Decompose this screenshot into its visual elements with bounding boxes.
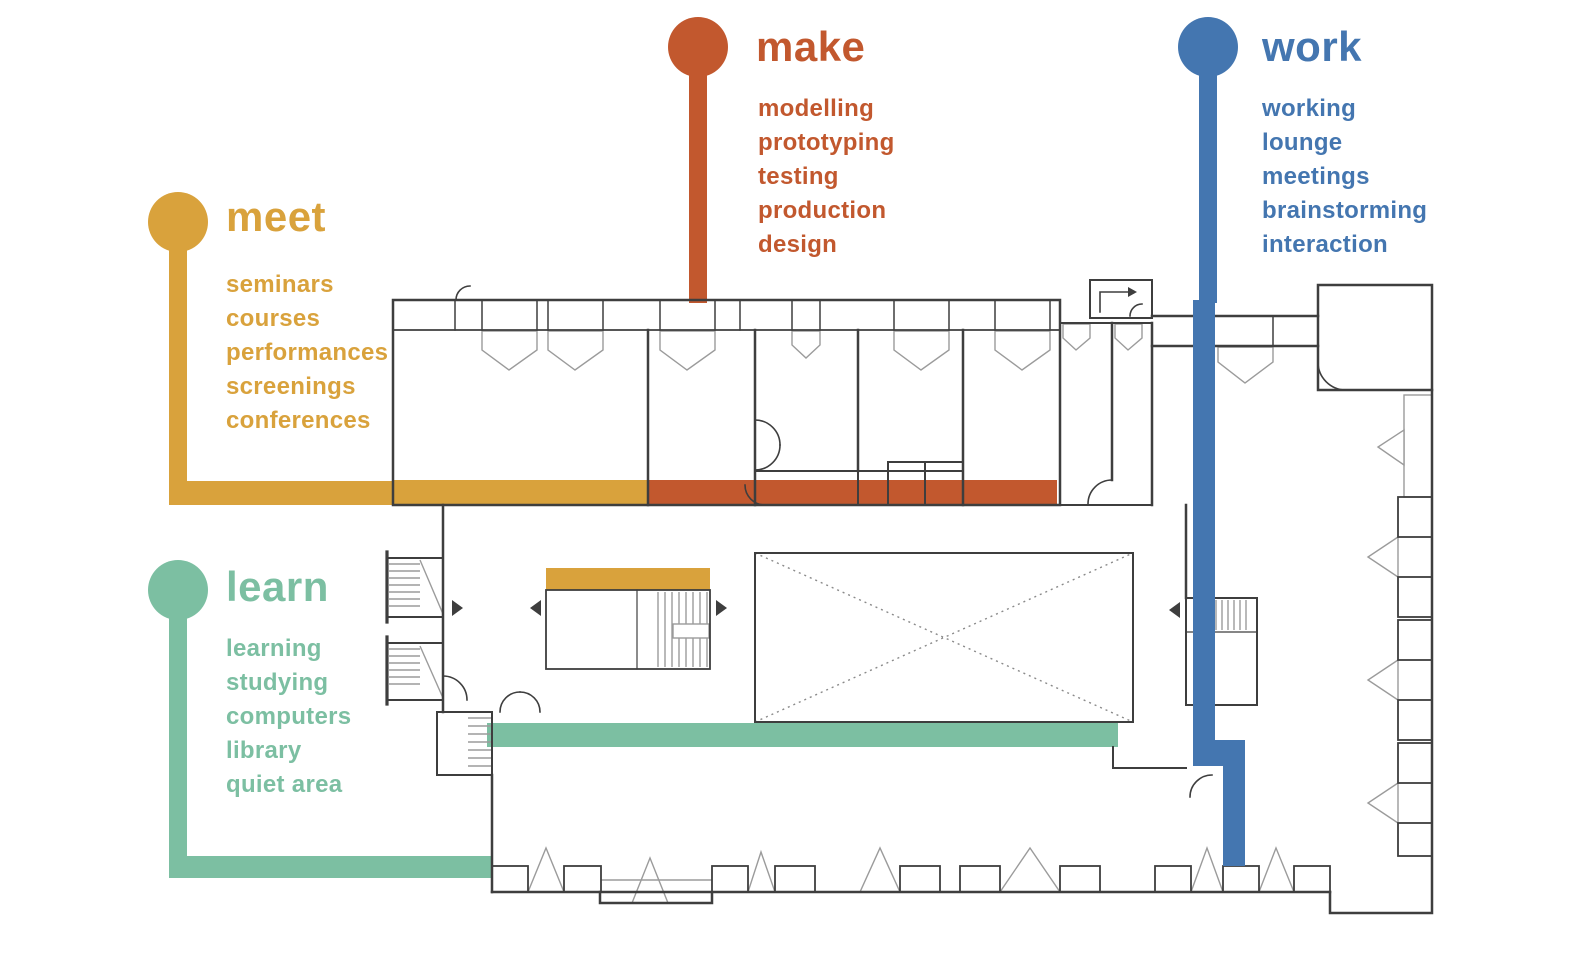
legend-make-list: modelling prototyping testing production…: [758, 92, 895, 262]
legend-meet-title: meet: [226, 196, 326, 238]
void-area: [755, 553, 1133, 722]
vestibule: [1060, 280, 1152, 505]
plan-walls: [387, 280, 1432, 913]
legend-learn-list: learning studying computers library quie…: [226, 632, 351, 802]
work-connector: [1178, 17, 1238, 303]
direction-arrows: [452, 600, 1180, 618]
poster: meet seminars courses performances scree…: [0, 0, 1582, 968]
legend-item: computers: [226, 700, 351, 734]
legend-item: brainstorming: [1262, 194, 1427, 228]
make-connector: [668, 17, 728, 303]
north-wing: [393, 286, 1060, 505]
legend-item: working: [1262, 92, 1427, 126]
legend-item: lounge: [1262, 126, 1427, 160]
legend-item: design: [758, 228, 895, 262]
make-zone-band: [648, 480, 1057, 505]
furniture-accent-band: [546, 568, 710, 590]
legend-item: meetings: [1262, 160, 1427, 194]
legend-work-list: working lounge meetings brainstorming in…: [1262, 92, 1427, 262]
legend-learn-title: learn: [226, 566, 329, 608]
legend-item: interaction: [1262, 228, 1427, 262]
legend-item: courses: [226, 302, 388, 336]
legend-item: library: [226, 734, 351, 768]
learn-zone-band: [487, 723, 1118, 747]
legend-item: quiet area: [226, 768, 351, 802]
corridor: [1152, 316, 1318, 346]
legend-item: modelling: [758, 92, 895, 126]
legend-make-title: make: [756, 26, 865, 68]
legend-item: prototyping: [758, 126, 895, 160]
legend-item: production: [758, 194, 895, 228]
legend-item: learning: [226, 632, 351, 666]
work-zone-path: [1193, 300, 1245, 866]
legend-item: screenings: [226, 370, 388, 404]
meet-zone-band: [394, 480, 648, 505]
legend-item: studying: [226, 666, 351, 700]
legend-work-title: work: [1262, 26, 1362, 68]
top-right-room: [1318, 285, 1432, 390]
legend-item: seminars: [226, 268, 388, 302]
legend-item: testing: [758, 160, 895, 194]
legend-item: conferences: [226, 404, 388, 438]
legend-meet-list: seminars courses performances screenings…: [226, 268, 388, 438]
legend-item: performances: [226, 336, 388, 370]
